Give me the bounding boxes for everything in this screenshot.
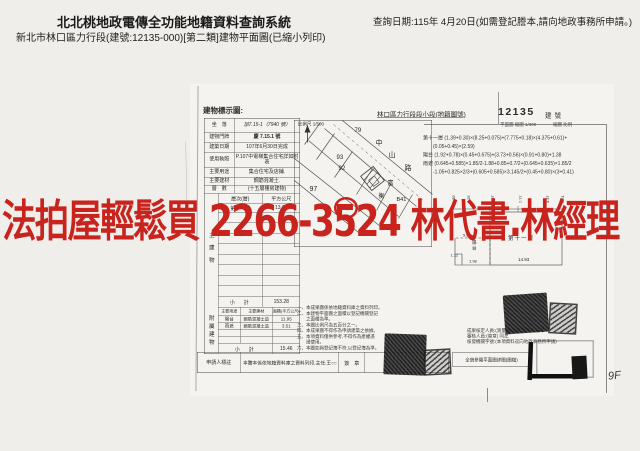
empty-row (219, 265, 301, 276)
table-row: 主要用途 集合住宅及店鋪. (205, 168, 300, 178)
row-label: 使用執照 (205, 153, 235, 168)
road-name-char: 山 (389, 150, 396, 160)
form-title: 建物標示圖: (203, 105, 243, 116)
official-seal-stamp (548, 302, 578, 334)
signature-seal-stamp (383, 333, 426, 375)
page-mark: 9F (607, 368, 621, 382)
map-char: 富 (388, 179, 394, 188)
calc-line: (0.05+0.45)×(2.59) (423, 143, 640, 152)
building-number-label: 建號 (545, 110, 564, 120)
calc-line: -1.05+0.825×2/3+(0.605+0.585)×3.145/2+(0… (423, 168, 640, 177)
scale-note-left: 平面圖 縮圖 1/300 (500, 121, 536, 128)
bottom-tick-mark (487, 388, 488, 402)
plan-dim: 1.12 (451, 253, 459, 258)
empty-row (219, 276, 301, 287)
annex-header-row: 主要用途 主要建材 面積(平方公尺) (219, 308, 301, 316)
annex-use: 陽台 (219, 316, 241, 323)
row-value: 慶 7.15.1 號 (235, 133, 300, 143)
empty-row (219, 286, 301, 297)
row-label: 主要建材 (205, 178, 235, 186)
main-subtotal-value: 153.28 (263, 297, 301, 308)
row-value: 107年6月30日完成 (235, 143, 300, 153)
annex-row: 陽台 鋼筋混凝土造 11.95 (219, 316, 301, 323)
annex-area: 11.95 (273, 316, 301, 323)
annex-area-header: 面積(平方公尺) (273, 308, 301, 316)
main-subtotal-row: 小 計 153.28 (219, 297, 301, 308)
annex-area: 3.51 (273, 323, 301, 330)
annex-material: 鋼筋混凝土造 (241, 323, 273, 330)
scale-note-right: 縮圖 比例 (553, 121, 572, 128)
row-label: 建築日期 (205, 143, 235, 153)
red-watermark-text: 法拍屋輕鬆買 2266-3524 林代書.林經理 (2, 199, 619, 245)
plan-bottom-dimension: 14.93 (518, 257, 529, 262)
parcel-number: 93 (337, 154, 344, 161)
road-name-char: 中 (376, 138, 383, 148)
annex-use: 雨遮 (219, 323, 241, 330)
row-value: P.107中電梯集合住宅詳如附表 (235, 153, 300, 168)
table-row: 層 數 (十五層樓房建物) (205, 186, 300, 194)
scan-artifact-blob (571, 356, 587, 380)
calc-line: 雨遮 (0.645+0.585)×1.85/2-1.88+0.85+0.7/2+… (423, 160, 640, 169)
row-label: 坐 落 (205, 119, 235, 133)
parcel-number: 79 (355, 127, 362, 134)
annex-material-header: 主要建材 (241, 308, 273, 316)
map-scale-label: 比例尺 1/500 (298, 121, 324, 128)
signature-seal-stamp (423, 348, 451, 375)
row-label: 層 數 (205, 186, 235, 194)
row-value: (十五層樓房建物) (235, 186, 300, 194)
row-value: 集合住宅及店鋪. (235, 168, 300, 178)
scan-edge-line-2 (185, 142, 187, 202)
building-number: 12135 (498, 106, 535, 118)
road-name-char: 路 (405, 163, 412, 173)
screenshot-page: 北北桃地政電傳全功能地籍資料查詢系統 新北市林口區力行段(建號:12135-00… (0, 0, 640, 451)
calc-line: 第十一層 (1.39+0.30)×(8.25+0.075)+(7.775+0.1… (423, 134, 640, 143)
scan-artifact-bar (528, 374, 576, 379)
area-calculation-block: 第十一層 (1.39+0.30)×(8.25+0.075)+(7.775+0.1… (423, 134, 640, 177)
side-note-box: 全貌參閱平面圖詳圖(圖檔) (452, 353, 531, 367)
district-section-label: 林口區力行段段小段(地籍圖號) (377, 109, 466, 119)
annex-side-label: 附屬建物 (207, 315, 215, 347)
annex-material: 鋼筋混凝土造 (241, 316, 273, 323)
table-row: 坐 落 加7.15-1（7940 號） (205, 119, 300, 133)
annex-use-header: 主要用途 (219, 308, 241, 316)
calc-line: 陽台 (1.92+0.78)×(0.45+0.675)+(3.73+0.56)×… (423, 151, 640, 160)
plan-dim: 1.98 (469, 259, 477, 264)
empty-row (219, 330, 301, 337)
table-row: 建築日期 107年6月30日完成 (205, 143, 300, 153)
table-row: 使用執照 P.107中電梯集合住宅詳如附表 (205, 153, 300, 168)
subtotal-label: 小 計 (219, 297, 263, 308)
applicant-note-label: 申請人標註 (198, 353, 241, 373)
row-label: 建物門牌 (205, 133, 235, 143)
row-value: 鋼筋混凝土. (235, 178, 300, 186)
row-value: 加7.15-1（7940 號） (235, 119, 300, 133)
signature-label: 簽 章 (339, 353, 365, 373)
table-row: 主要建材 鋼筋混凝土. (205, 178, 300, 186)
table-row: 建物門牌 慶 7.15.1 號 (205, 133, 300, 143)
parcel-number: 97 (310, 185, 318, 193)
applicant-note-text: 本謄本係依地籍資料庫之資料列印,主任:王○○ 承辦人:林○○ (241, 353, 339, 373)
annex-subtable: 主要用途 主要建材 面積(平方公尺) 陽台 鋼筋混凝土造 11.95 雨遮 鋼筋… (219, 308, 301, 355)
empty-row (219, 255, 301, 266)
empty-row (219, 337, 301, 344)
parcel-number: 92 (339, 165, 346, 172)
annex-row: 雨遮 鋼筋混凝土造 3.51 (219, 323, 301, 330)
north-arrow (305, 125, 311, 143)
annex-side-column: 附屬建物 (205, 308, 219, 355)
row-label: 主要用途 (205, 168, 235, 178)
official-seal-stamp (503, 293, 550, 335)
